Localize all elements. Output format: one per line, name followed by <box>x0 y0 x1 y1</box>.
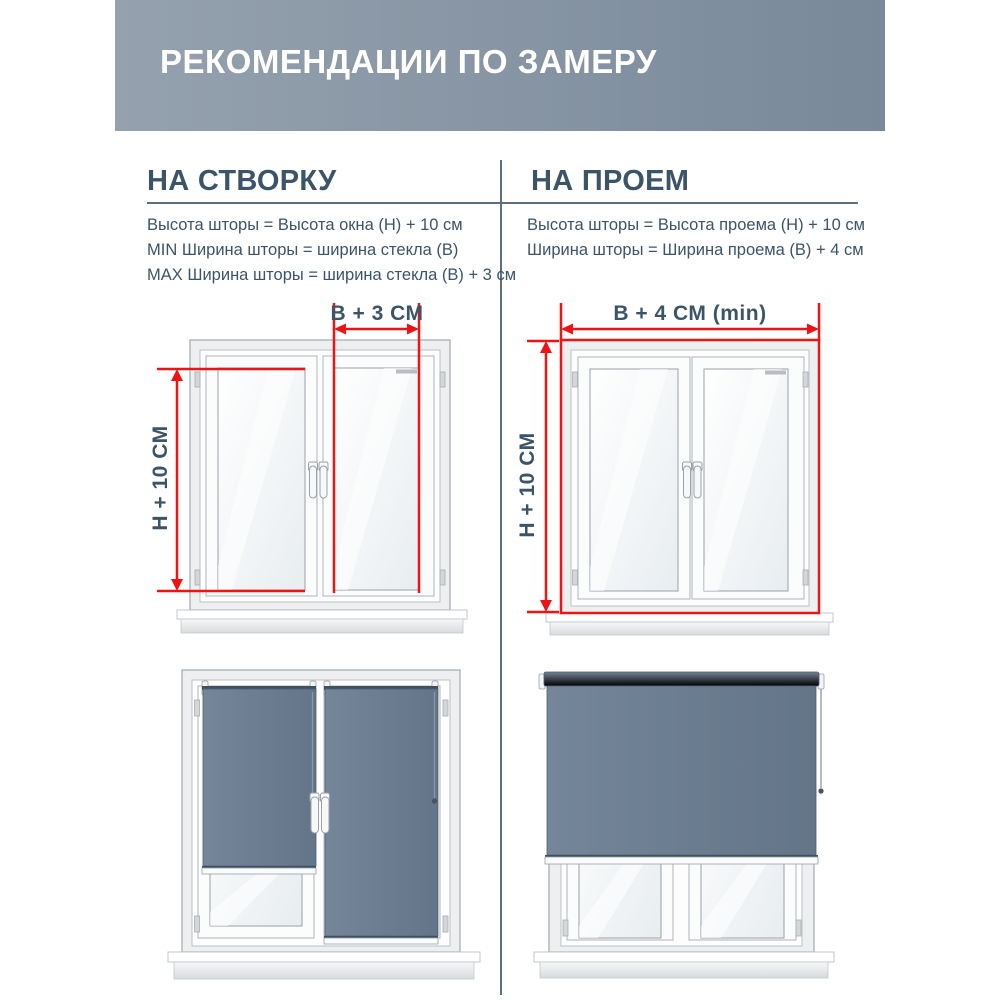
section-opening-rule <box>501 202 858 204</box>
opening-formula-height: Высота шторы = Высота проема (Н) + 10 см <box>527 213 865 238</box>
arrowhead-icon <box>807 324 819 335</box>
page-title: РЕКОМЕНДАЦИИ ПО ЗАМЕРУ <box>160 43 657 81</box>
diagram-opening-window: В + 4 СМ (min) Н + 10 СМ <box>495 293 870 640</box>
windowsill-base <box>540 962 828 978</box>
windowsill-base <box>550 622 829 635</box>
section-sash-rule <box>147 202 501 204</box>
arrowhead-icon <box>561 324 573 335</box>
sash-formula-min-width: MIN Ширина шторы = ширина стекла (В) <box>147 238 458 263</box>
hinge-icon <box>573 372 578 387</box>
blind-fabric <box>547 686 816 855</box>
hinge-icon <box>195 570 200 585</box>
illustration-blind-on-opening <box>515 660 885 1000</box>
hinge-icon <box>195 372 200 387</box>
blind-bottom-bar <box>202 868 316 874</box>
arrowhead-icon <box>171 369 183 381</box>
opening-height-label: Н + 10 СМ <box>516 432 539 537</box>
window-illustration <box>177 340 467 633</box>
window-illustration <box>546 340 833 635</box>
illustration-blinds-on-sash <box>160 660 490 1000</box>
window-handle <box>310 466 317 498</box>
header-banner: РЕКОМЕНДАЦИИ ПО ЗАМЕРУ <box>115 0 885 131</box>
diagram-sash-window: В + 3 СМ Н + 10 СМ <box>140 293 485 640</box>
windowsill <box>168 952 480 962</box>
hinge-icon <box>195 916 200 932</box>
blind-fabric <box>203 689 316 866</box>
windowsill-base <box>174 962 474 979</box>
windowsill <box>546 613 833 622</box>
window-handle <box>684 466 691 498</box>
windowsill <box>177 610 467 619</box>
sash-height-label: Н + 10 СМ <box>149 425 172 530</box>
hinge-icon <box>803 570 808 585</box>
measurement-guide-page: РЕКОМЕНДАЦИИ ПО ЗАМЕРУ НА СТВОРКУ Высота… <box>0 0 1000 1000</box>
blind-bottom-bar <box>545 857 818 864</box>
hinge-icon <box>573 570 578 585</box>
roller-blind-left-sash <box>202 681 316 874</box>
roller-blind-right-sash <box>324 681 438 944</box>
sash-formula-height: Высота шторы = Высота окна (Н) + 10 см <box>147 213 463 238</box>
hinge-icon <box>563 920 568 936</box>
arrowhead-icon <box>540 341 552 353</box>
arrowhead-icon <box>540 600 552 612</box>
section-opening-heading: НА ПРОЕМ <box>531 165 689 198</box>
window-handle <box>322 797 330 833</box>
arrowhead-icon <box>407 324 419 335</box>
arrowhead-icon <box>334 324 346 335</box>
blind-chain-ball <box>432 798 437 803</box>
hinge-icon <box>195 700 200 716</box>
hinge-icon <box>440 372 445 387</box>
blind-fabric <box>325 689 438 936</box>
blind-roller-tube <box>544 672 819 686</box>
hinge-icon <box>443 916 448 932</box>
hinge-icon <box>443 700 448 716</box>
blind-bottom-bar <box>324 938 438 944</box>
windowsill <box>534 952 834 962</box>
hinge-icon <box>440 570 445 585</box>
sash-width-label: В + 3 СМ <box>331 302 424 325</box>
hinge-icon <box>803 372 808 387</box>
windowsill-group <box>168 952 480 979</box>
blind-chain-ball <box>818 788 823 793</box>
opening-formula-width: Ширина шторы = Ширина проема (В) + 4 см <box>527 238 864 263</box>
roller-blind-opening <box>539 672 824 864</box>
window-handle <box>320 466 327 498</box>
vent-strip <box>765 371 786 375</box>
window-handle <box>694 466 701 498</box>
arrowhead-icon <box>171 579 183 591</box>
window-handle <box>311 797 319 833</box>
sash-formula-max-width: MAX Ширина шторы = ширина стекла (В) + 3… <box>147 263 516 288</box>
opening-width-label: В + 4 СМ (min) <box>613 302 766 325</box>
hinge-icon <box>796 920 801 936</box>
windowsill-base <box>181 619 463 633</box>
vent-strip <box>396 370 417 374</box>
section-sash-heading: НА СТВОРКУ <box>147 165 336 198</box>
